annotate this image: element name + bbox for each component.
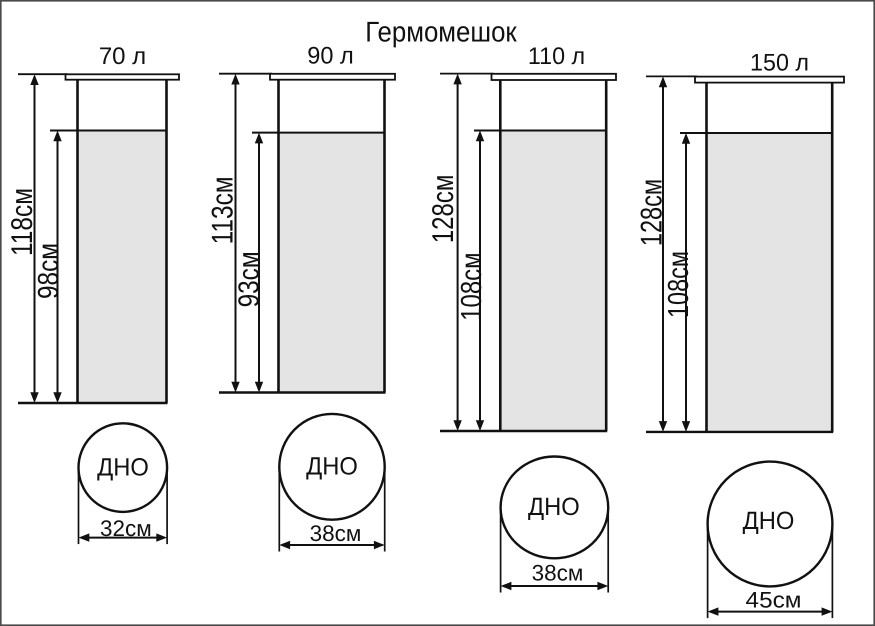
svg-text:128см: 128см xyxy=(636,179,669,246)
svg-text:45см: 45см xyxy=(746,588,802,613)
svg-text:128см: 128см xyxy=(427,175,460,244)
svg-text:Гермомешок: Гермомешок xyxy=(365,16,517,48)
svg-text:108см: 108см xyxy=(456,252,488,320)
svg-text:ДНО: ДНО xyxy=(306,453,358,481)
svg-text:113см: 113см xyxy=(207,176,240,244)
svg-text:32см: 32см xyxy=(100,516,152,541)
svg-text:150 л: 150 л xyxy=(750,50,809,77)
svg-text:90 л: 90 л xyxy=(307,43,353,70)
svg-text:ДНО: ДНО xyxy=(528,493,580,521)
svg-text:93см: 93см xyxy=(234,251,266,307)
svg-text:38см: 38см xyxy=(532,560,584,585)
svg-text:ДНО: ДНО xyxy=(97,454,149,482)
svg-text:ДНО: ДНО xyxy=(743,507,795,535)
svg-text:108см: 108см xyxy=(663,251,695,318)
svg-text:98см: 98см xyxy=(33,243,65,299)
svg-text:70 л: 70 л xyxy=(99,43,146,70)
svg-text:38см: 38см xyxy=(310,521,362,546)
svg-text:110 л: 110 л xyxy=(528,43,585,70)
